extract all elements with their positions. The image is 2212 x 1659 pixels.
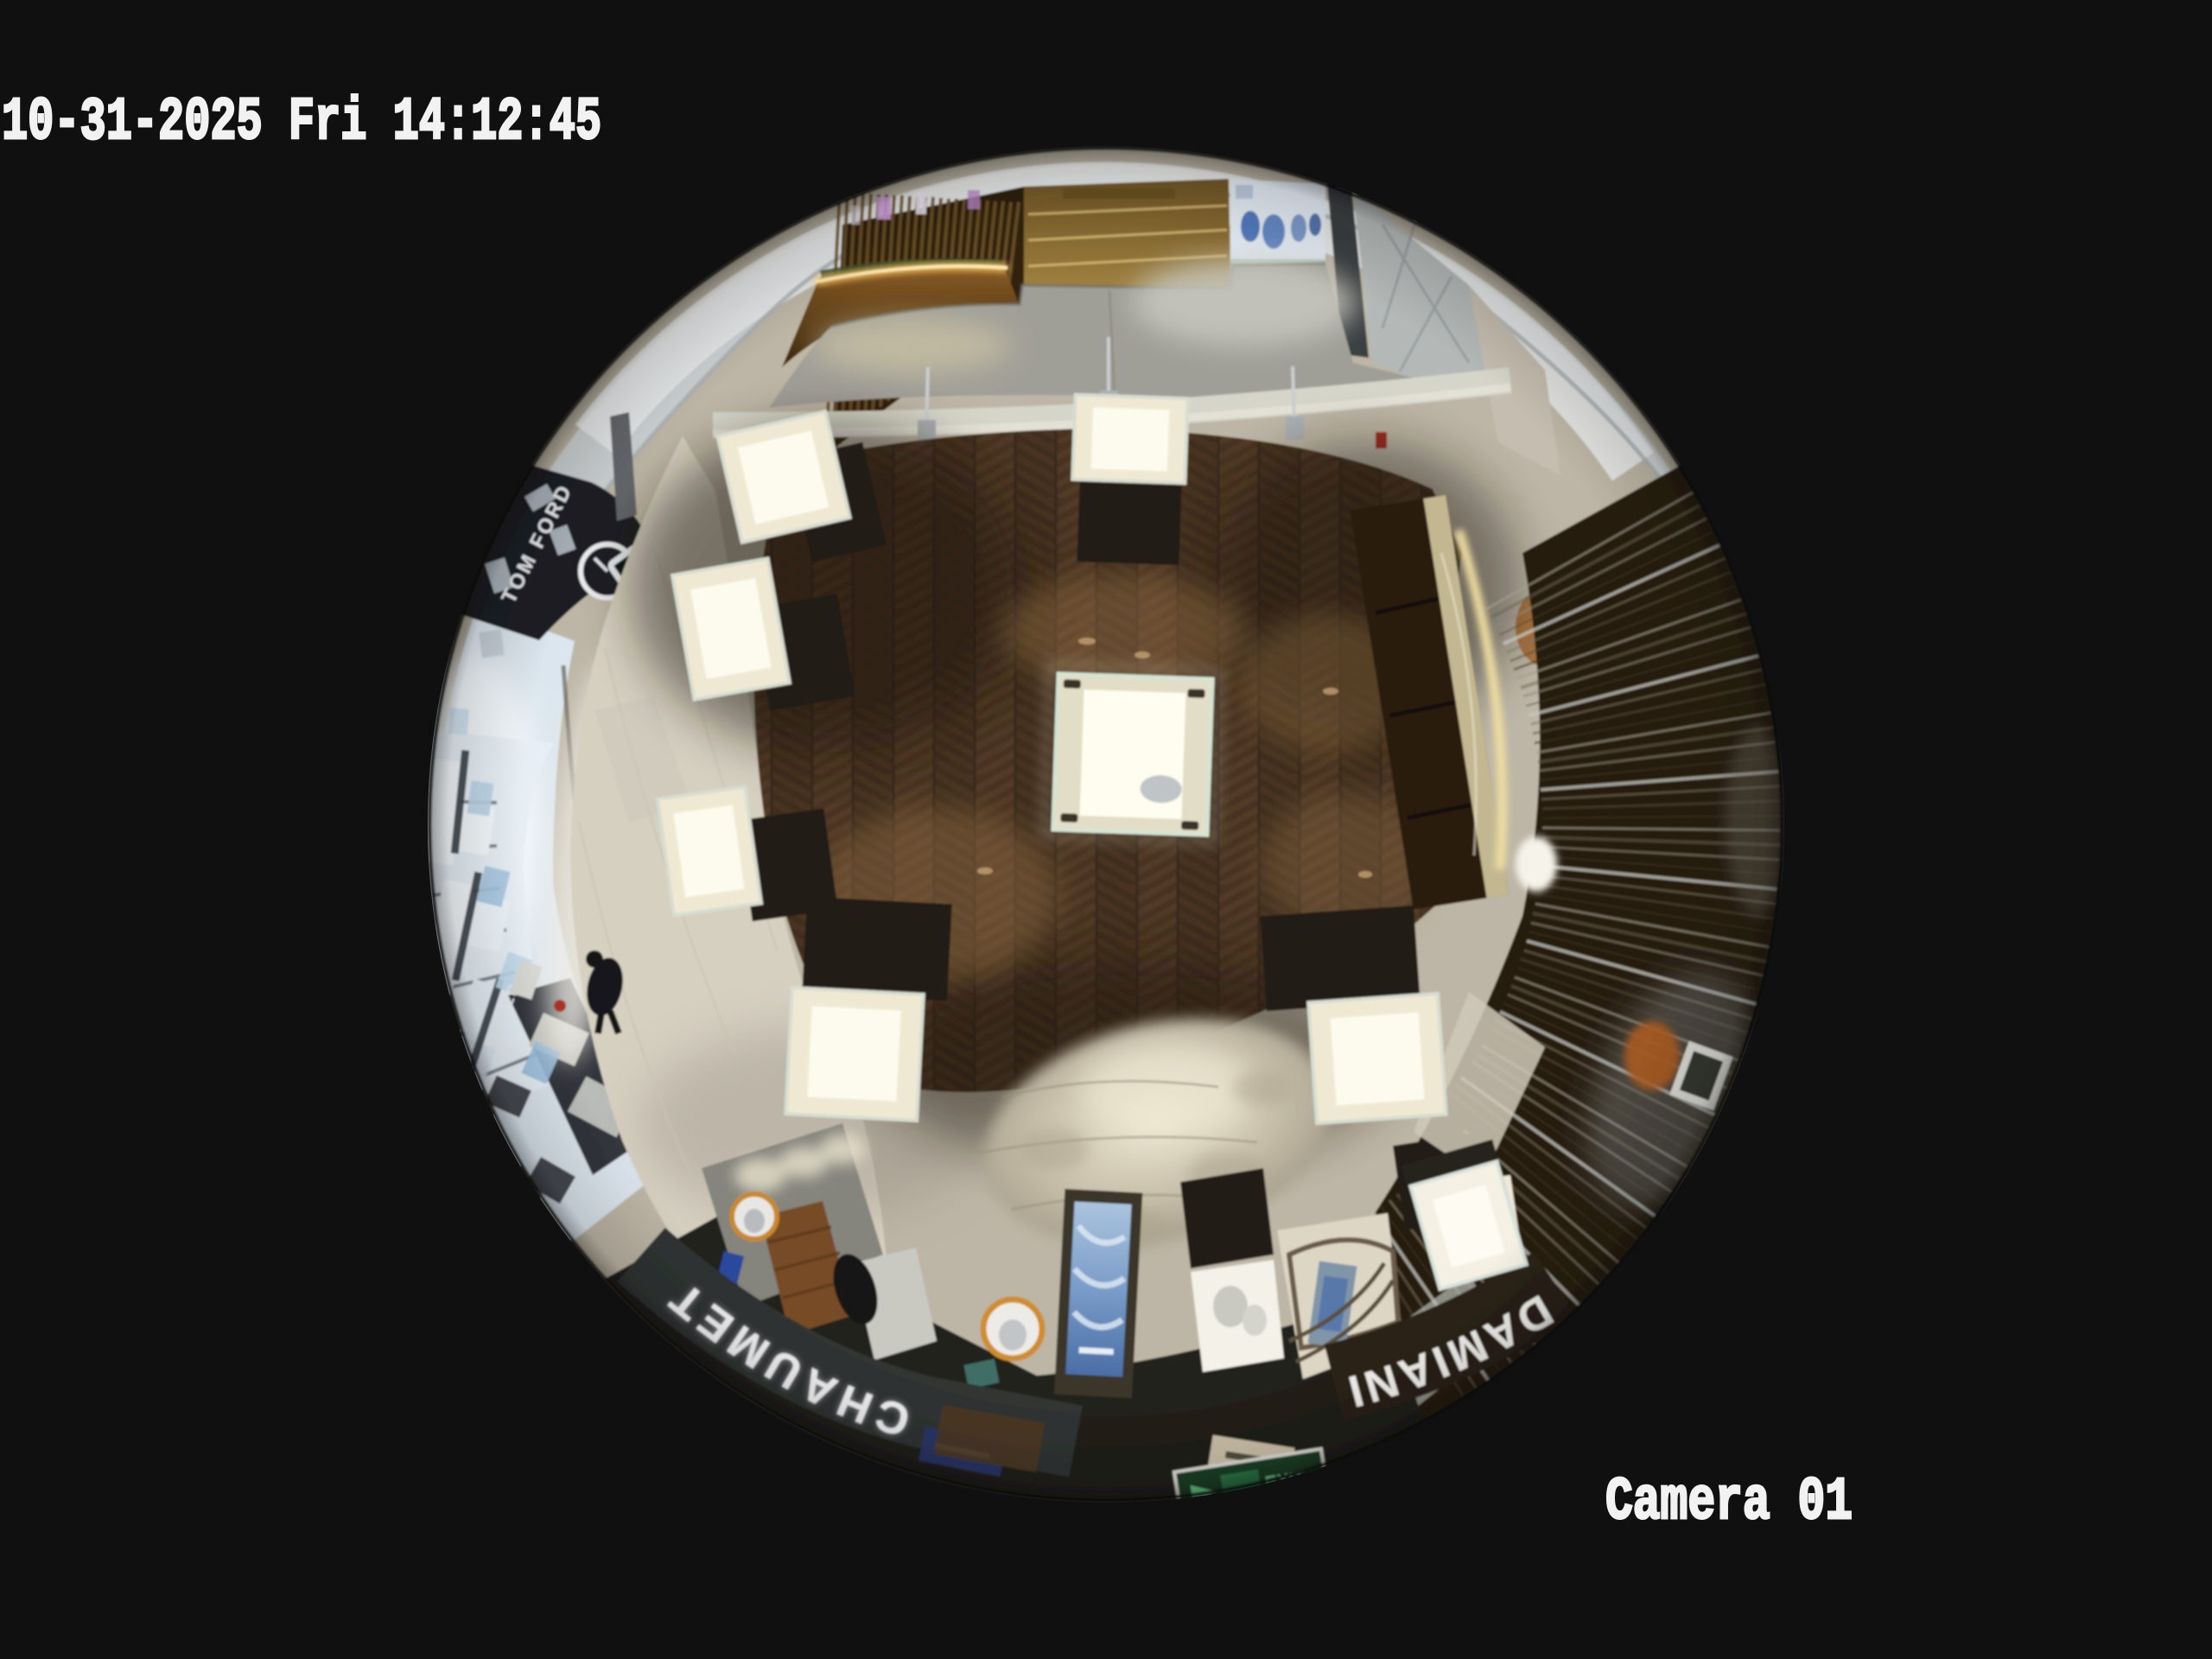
svg-text:Camera 01: Camera 01 [1605,1469,1853,1537]
svg-text:10-31-2025 Fri 14:12:45: 10-31-2025 Fri 14:12:45 [2,89,601,157]
